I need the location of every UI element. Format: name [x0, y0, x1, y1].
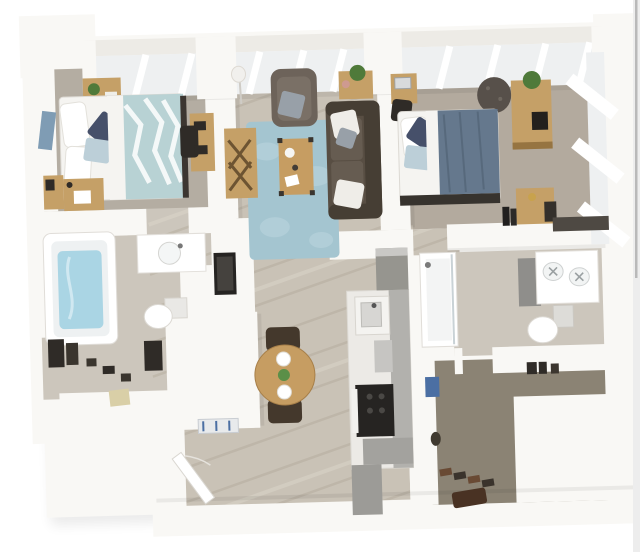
unit-shell — [18, 0, 640, 552]
floorplan-render — [0, 0, 640, 552]
bath1-vanity — [137, 233, 206, 273]
doormat — [198, 418, 238, 433]
wall-bath2-bottom-b — [492, 344, 607, 373]
storage-box — [109, 389, 131, 407]
blue-pillow — [83, 137, 112, 164]
double-vanity — [536, 250, 599, 304]
base-cabinet — [363, 437, 414, 464]
sofa-pillow — [333, 179, 365, 210]
right-edge-line — [635, 0, 638, 278]
bedroom2-shelf — [553, 216, 609, 232]
kitchen-sink — [355, 296, 390, 335]
refrigerator — [375, 248, 408, 291]
bedroom2-dresser — [511, 70, 553, 149]
dishwasher — [374, 340, 393, 372]
shower-stall — [420, 252, 459, 347]
coffee-table — [277, 137, 315, 196]
media-console — [224, 128, 258, 199]
blue-bin — [425, 377, 440, 397]
bedroom2-bed — [398, 109, 501, 206]
bathtub — [43, 232, 118, 346]
wall-bed1-bath1-right — [188, 207, 213, 234]
sofa — [325, 100, 382, 219]
wall-bath2-bottom-a — [454, 348, 463, 374]
plate — [277, 385, 291, 399]
floorplan-canvas — [0, 0, 640, 552]
armchair — [270, 68, 318, 127]
pantry-cabinet — [351, 464, 382, 515]
range — [351, 384, 394, 437]
bedroom1-dresser — [43, 174, 104, 212]
wall-closet2-inset — [514, 394, 611, 503]
hanging-clothes — [48, 339, 65, 367]
plate — [276, 352, 290, 366]
window-pier-1 — [195, 36, 237, 99]
wall-tv — [213, 252, 236, 295]
